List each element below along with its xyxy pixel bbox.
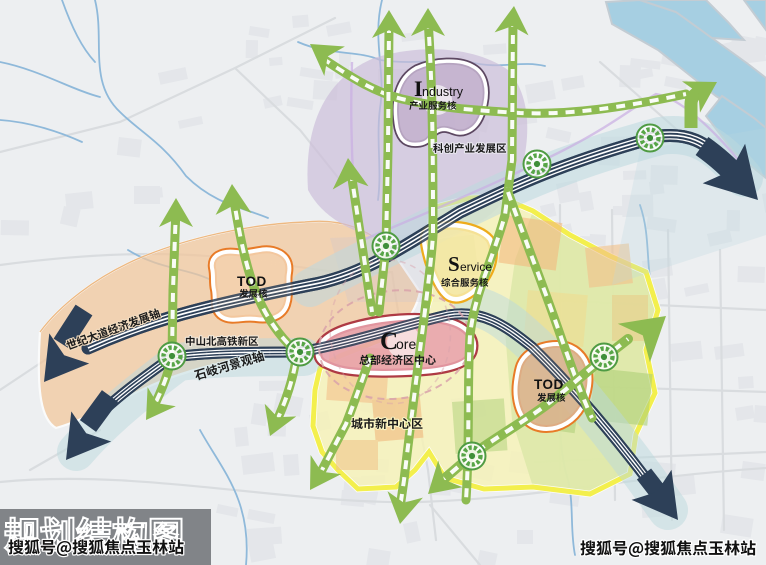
svg-text:TOD: TOD [237,274,267,289]
svg-text:TOD: TOD [534,377,564,392]
svg-text:ndustry: ndustry [422,85,464,99]
svg-text:ore: ore [396,336,416,352]
svg-text:ervice: ervice [460,260,492,274]
svg-text:S: S [448,252,460,276]
